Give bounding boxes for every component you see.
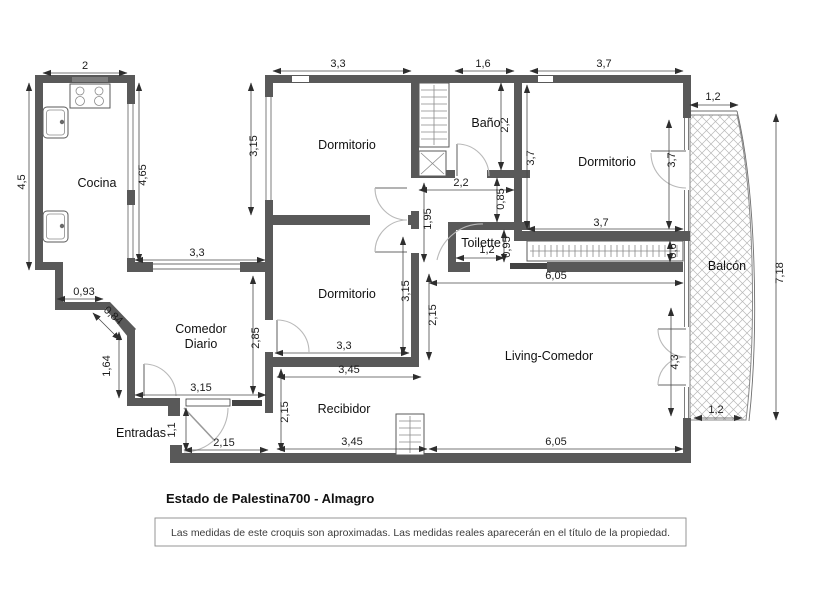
room-label-living-comedor: Living-Comedor — [505, 349, 593, 363]
room-label-recibidor: Recibidor — [318, 402, 371, 416]
dimension-label: 1,2 — [705, 91, 720, 103]
dimension-label: 4,3 — [669, 354, 681, 369]
comedor-door — [144, 364, 176, 396]
toilette-door-bar — [510, 263, 547, 269]
door-thresholds — [186, 263, 547, 406]
dormitorio2-door — [375, 220, 407, 252]
closet-rail-icon — [527, 241, 683, 261]
dimension-label: 3,15 — [248, 135, 260, 156]
dimension-label: 3,15 — [190, 382, 211, 394]
dimension-label: 4,5 — [16, 174, 28, 189]
dimension-label: 0,6 — [667, 243, 679, 258]
dimension-label: 3,3 — [189, 247, 204, 259]
dimension-label: 0,85 — [495, 188, 507, 209]
room-label-cocina: Cocina — [78, 176, 117, 190]
dimension-label: 3,7 — [666, 152, 678, 167]
dimension-label: 2,2 — [499, 117, 511, 132]
dimension-label: 3,7 — [596, 58, 611, 70]
entry-threshold — [186, 399, 230, 406]
dimension-label: 2,85 — [250, 327, 262, 348]
entry-door-bar — [232, 400, 262, 406]
dimension-label: 2,15 — [213, 437, 234, 449]
room-label-comedor-diario: ComedorDiario — [175, 322, 226, 351]
dimension-label: 3,3 — [330, 58, 345, 70]
dimension-label: 1,1 — [166, 422, 178, 437]
room-label-bano: Baño — [471, 116, 500, 130]
dimension-label: 4,65 — [137, 164, 149, 185]
sink-icon — [43, 107, 68, 138]
dimension-label: 0,93 — [73, 286, 94, 298]
dimension-label: 7,18 — [774, 262, 786, 283]
room-label-dormitorio-1: Dormitorio — [318, 138, 376, 152]
disclaimer-text: Las medidas de este croquis son aproxima… — [171, 527, 670, 539]
floor-plan-drawing: 23,31,63,74,54,653,152,23,73,72,20,851,9… — [0, 0, 828, 589]
sink-icon — [43, 211, 68, 242]
dimension-label: 3,45 — [338, 364, 359, 376]
room-label-dormitorio-3: Dormitorio — [578, 155, 636, 169]
dimension-label: 1,95 — [422, 208, 434, 229]
stove-icon — [70, 77, 110, 108]
dimension-label: 1,2 — [708, 404, 723, 416]
dormitorio2-side-door — [277, 320, 309, 352]
bathroom-door — [457, 144, 489, 176]
dimension-label: 2,15 — [279, 401, 291, 422]
disclaimer-box: Las medidas de este croquis son aproxima… — [155, 518, 686, 546]
dimension-label: 2 — [82, 60, 88, 72]
duct-icon — [419, 151, 446, 176]
dimension-label: 3,45 — [341, 436, 362, 448]
dimension-label: 3,3 — [336, 340, 351, 352]
wardrobe-icon — [419, 83, 449, 147]
dimension-label: 3,7 — [593, 217, 608, 229]
room-label-balcon: Balcón — [708, 259, 746, 273]
dormitorio1-door — [375, 188, 407, 220]
dimension-label: 1,6 — [475, 58, 490, 70]
room-label-dormitorio-2: Dormitorio — [318, 287, 376, 301]
dimension-label: 2,2 — [453, 177, 468, 189]
room-label-entradas: Entradas — [116, 426, 166, 440]
plan-title: Estado de Palestina700 - Almagro — [166, 491, 374, 506]
dimension-label: 0,95 — [501, 236, 513, 257]
dimension-label: 6,05 — [545, 270, 566, 282]
floor-plan-page: 23,31,63,74,54,653,152,23,73,72,20,851,9… — [0, 0, 828, 589]
room-label-toilette: Toilette — [461, 236, 501, 250]
dimension-label: 3,7 — [525, 150, 537, 165]
dimension-label: 2,15 — [427, 304, 439, 325]
dimension-label: 1,64 — [101, 355, 113, 376]
dimension-label: 3,15 — [400, 280, 412, 301]
dimension-label: 6,05 — [545, 436, 566, 448]
